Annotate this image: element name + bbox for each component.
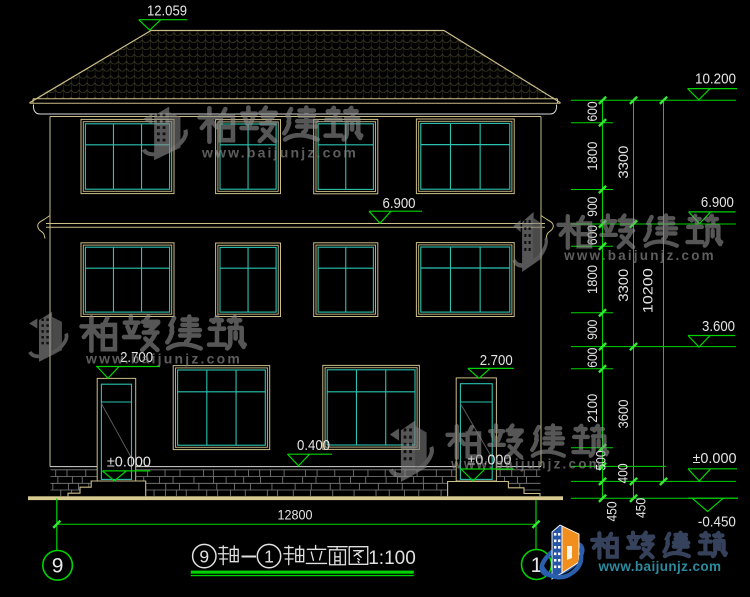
svg-text:600: 600 — [584, 348, 600, 368]
svg-text:www.baijunjz.com: www.baijunjz.com — [563, 248, 716, 263]
svg-text:1800: 1800 — [584, 141, 600, 170]
svg-text:450: 450 — [633, 498, 649, 518]
svg-text:12.059: 12.059 — [147, 3, 187, 20]
svg-text:450: 450 — [604, 501, 620, 521]
svg-text:-0.450: -0.450 — [698, 514, 736, 531]
svg-text:3600: 3600 — [615, 399, 631, 428]
svg-text:www.baijunjz.com: www.baijunjz.com — [201, 145, 358, 161]
svg-text:1: 1 — [264, 546, 274, 566]
svg-text:10.200: 10.200 — [695, 71, 736, 88]
svg-text:900: 900 — [584, 320, 600, 340]
svg-text:9: 9 — [52, 555, 64, 578]
svg-text:0.400: 0.400 — [297, 437, 330, 454]
svg-text:10200: 10200 — [640, 268, 656, 313]
svg-text:9: 9 — [199, 546, 209, 566]
svg-text:12800: 12800 — [278, 507, 313, 523]
svg-text:1800: 1800 — [584, 265, 600, 294]
svg-text:www.baijunjz.com: www.baijunjz.com — [450, 457, 603, 472]
svg-text:6.900: 6.900 — [383, 195, 416, 212]
svg-text:6.900: 6.900 — [701, 194, 734, 211]
svg-text:3300: 3300 — [615, 269, 631, 302]
svg-text:±0.000: ±0.000 — [693, 450, 737, 467]
svg-text:3300: 3300 — [615, 145, 631, 178]
svg-text:900: 900 — [584, 197, 600, 217]
svg-text:www.baijunjz.com: www.baijunjz.com — [85, 351, 242, 367]
svg-text:1:100: 1:100 — [368, 548, 416, 569]
svg-text:2100: 2100 — [584, 394, 600, 423]
svg-text:2.700: 2.700 — [480, 352, 513, 369]
svg-text:400: 400 — [615, 463, 631, 483]
svg-text:www.baijunjz.com: www.baijunjz.com — [598, 559, 722, 574]
svg-text:3.600: 3.600 — [702, 318, 735, 335]
svg-text:600: 600 — [584, 101, 600, 121]
svg-text:±0.000: ±0.000 — [107, 454, 151, 471]
